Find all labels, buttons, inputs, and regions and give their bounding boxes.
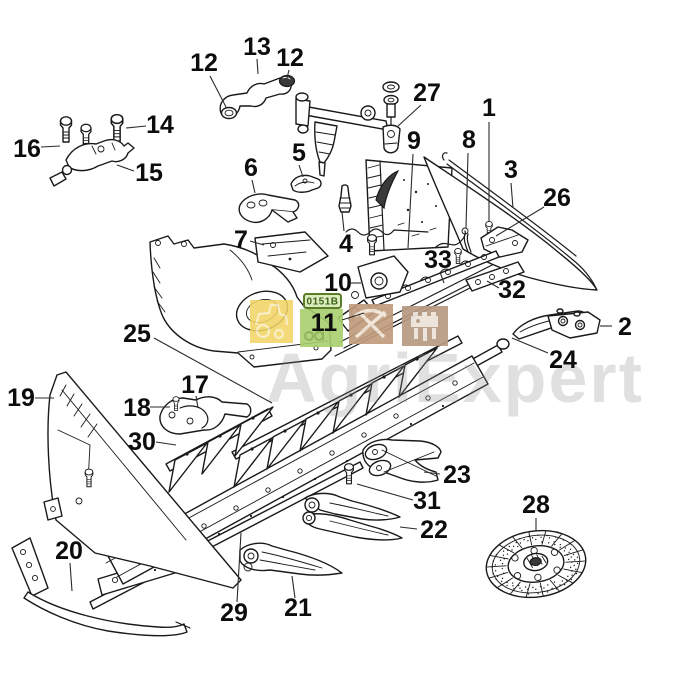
leader-line-31	[357, 484, 413, 500]
part-22-guard-double	[303, 493, 402, 539]
leader-line-14	[126, 126, 146, 128]
harvester-icon	[411, 312, 438, 341]
callout-3: 3	[504, 156, 518, 184]
callout-32: 32	[498, 276, 526, 304]
leader-line-27	[398, 105, 421, 126]
leader-line-16	[41, 146, 60, 147]
leader-line-4	[342, 212, 344, 231]
watermark-square-tan1	[349, 304, 393, 344]
callout-4: 4	[339, 230, 353, 258]
callout-16: 16	[13, 135, 41, 163]
callout-23: 23	[443, 461, 471, 489]
part-21-guard-finger	[240, 543, 342, 575]
leader-line-20	[70, 563, 72, 591]
callout-9: 9	[407, 127, 421, 155]
part-2-outer-skid	[513, 309, 600, 339]
watermark-square-yellow	[250, 300, 293, 343]
part-28-clutch-disc	[482, 524, 590, 603]
watermark-brand-text: AgriExpert	[266, 339, 644, 417]
callout-17: 17	[181, 371, 209, 399]
callout-26: 26	[543, 184, 571, 212]
part-27-clevis	[383, 125, 400, 153]
part-14-bolt	[111, 115, 123, 141]
callout-7: 7	[234, 226, 248, 254]
callout-22: 22	[420, 516, 448, 544]
callout-1: 1	[482, 94, 496, 122]
callout-12: 12	[276, 44, 304, 72]
part-15-bracket	[50, 140, 134, 186]
callout-30: 30	[128, 428, 156, 456]
part-6-bracket	[239, 194, 298, 222]
callout-2: 2	[618, 313, 632, 341]
parts-diagram-page: AgriExpert	[0, 0, 700, 700]
leader-line-15	[117, 165, 134, 171]
leader-line-12	[210, 76, 226, 107]
callout-8: 8	[462, 126, 476, 154]
leader-line-13	[257, 59, 258, 74]
leader-line-3	[511, 183, 513, 208]
callout-27: 27	[413, 79, 441, 107]
leader-line-30	[156, 442, 176, 445]
part-4-plug	[339, 185, 351, 212]
parts-diagram-canvas: AgriExpert	[0, 0, 700, 700]
leader-line-29	[237, 533, 241, 602]
part-5-clip	[291, 175, 321, 192]
callout-25: 25	[123, 320, 151, 348]
callout-6: 6	[244, 154, 258, 182]
callout-31: 31	[413, 487, 441, 515]
callout-14: 14	[146, 111, 174, 139]
callout-29: 29	[220, 599, 248, 627]
callout-10: 10	[324, 269, 352, 297]
callout-24: 24	[549, 346, 577, 374]
watermark-square-tan2	[402, 306, 448, 346]
callout-12: 12	[190, 49, 218, 77]
callout-13: 13	[243, 33, 271, 61]
callout-18: 18	[123, 394, 151, 422]
callout-21: 21	[284, 594, 312, 622]
callout-5: 5	[292, 139, 306, 167]
callout-11: 11	[311, 309, 338, 337]
part-16-bolts	[61, 117, 91, 147]
callout-20: 20	[55, 537, 83, 565]
part-13-rocker-arm	[220, 76, 294, 119]
callout-33: 33	[424, 246, 452, 274]
part-23-guard-top	[363, 439, 441, 482]
callout-15: 15	[135, 159, 163, 187]
callout-19: 19	[7, 384, 35, 412]
leader-line-22	[400, 527, 417, 529]
watermark-ref-code: 0151B	[307, 297, 339, 308]
callout-28: 28	[522, 491, 550, 519]
